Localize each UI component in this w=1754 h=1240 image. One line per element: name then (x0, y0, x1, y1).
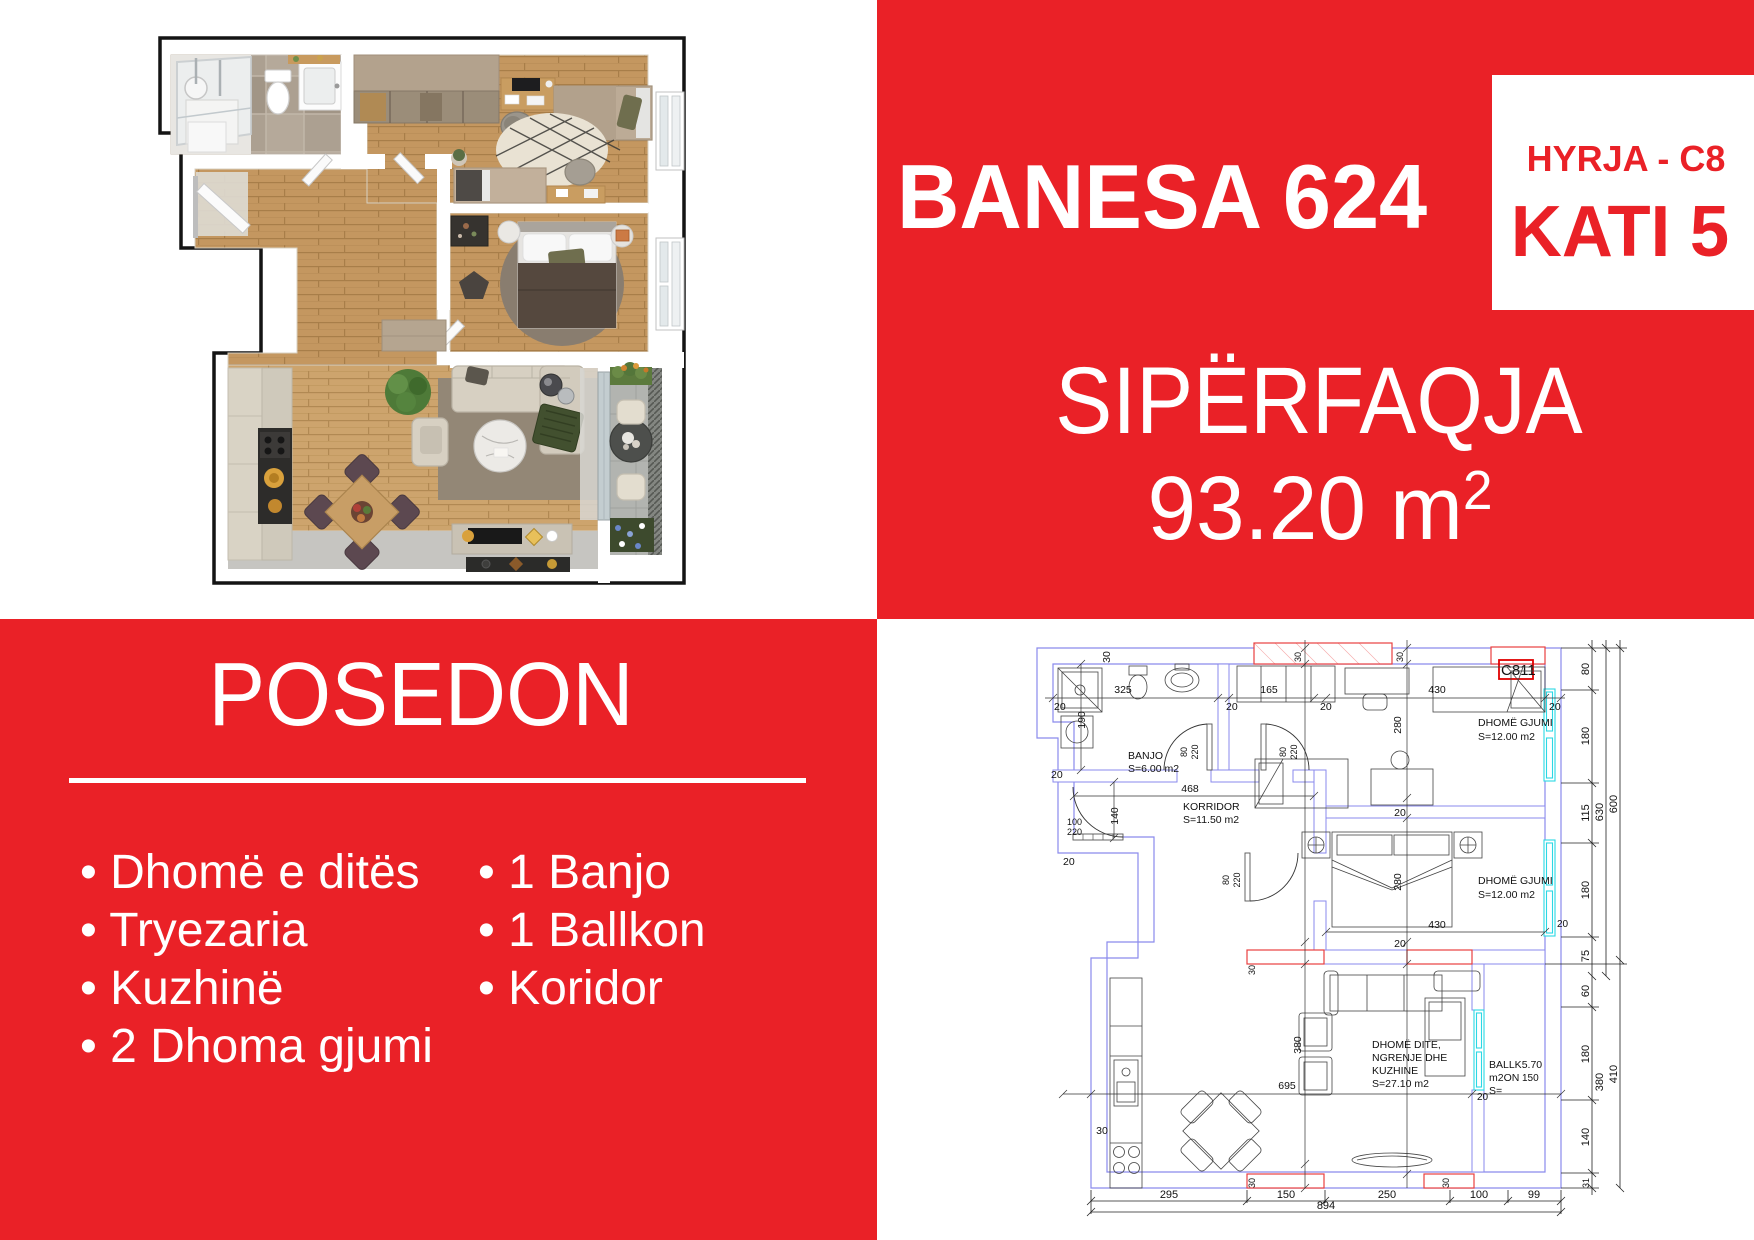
svg-text:600: 600 (1608, 795, 1620, 813)
svg-text:S=11.50 m2: S=11.50 m2 (1183, 814, 1239, 826)
svg-text:410: 410 (1608, 1065, 1620, 1083)
svg-text:100: 100 (1067, 817, 1082, 827)
svg-text:31: 31 (1581, 1178, 1591, 1188)
svg-text:180: 180 (1580, 1045, 1592, 1063)
svg-text:220: 220 (1067, 827, 1082, 837)
svg-text:220: 220 (1190, 744, 1200, 759)
svg-text:BALLK5.70: BALLK5.70 (1489, 1059, 1542, 1071)
svg-text:80: 80 (1278, 747, 1288, 757)
svg-text:C811: C811 (1501, 662, 1536, 679)
svg-text:140: 140 (1580, 1128, 1592, 1146)
svg-text:30: 30 (1247, 1178, 1257, 1188)
svg-text:430: 430 (1428, 919, 1446, 931)
svg-text:20: 20 (1051, 769, 1063, 781)
svg-text:80: 80 (1221, 875, 1231, 885)
svg-text:S=27.10 m2: S=27.10 m2 (1372, 1078, 1429, 1090)
svg-text:220: 220 (1289, 744, 1299, 759)
svg-text:KORRIDOR: KORRIDOR (1183, 801, 1240, 813)
svg-text:30: 30 (1096, 1125, 1108, 1137)
svg-text:30: 30 (1293, 652, 1303, 662)
svg-text:20: 20 (1394, 938, 1406, 950)
svg-text:20: 20 (1226, 701, 1238, 713)
svg-text:280: 280 (1392, 716, 1404, 734)
svg-text:20: 20 (1477, 1092, 1489, 1103)
svg-text:220: 220 (1232, 872, 1242, 887)
svg-text:99: 99 (1528, 1189, 1540, 1201)
svg-text:m2ON: m2ON (1489, 1072, 1519, 1084)
svg-text:DHOMË DITE,: DHOMË DITE, (1372, 1039, 1441, 1051)
svg-text:150: 150 (1522, 1073, 1539, 1084)
svg-text:DHOMË GJUMI: DHOMË GJUMI (1478, 875, 1553, 887)
svg-text:S=: S= (1489, 1085, 1502, 1097)
svg-text:180: 180 (1580, 727, 1592, 745)
svg-text:30: 30 (1101, 651, 1113, 663)
svg-text:20: 20 (1063, 856, 1075, 868)
svg-text:380: 380 (1292, 1036, 1304, 1054)
svg-text:190: 190 (1076, 711, 1088, 729)
svg-text:20: 20 (1054, 701, 1066, 713)
svg-text:250: 250 (1378, 1189, 1396, 1201)
svg-text:BANJO: BANJO (1128, 750, 1163, 762)
svg-text:20: 20 (1394, 807, 1406, 819)
svg-text:894: 894 (1317, 1200, 1335, 1212)
svg-text:295: 295 (1160, 1189, 1178, 1201)
svg-text:280: 280 (1392, 873, 1404, 891)
svg-text:20: 20 (1320, 701, 1332, 713)
svg-text:DHOMË GJUMI: DHOMË GJUMI (1478, 717, 1553, 729)
svg-text:S=12.00 m2: S=12.00 m2 (1478, 889, 1535, 901)
svg-text:180: 180 (1580, 881, 1592, 899)
svg-text:20: 20 (1549, 701, 1561, 713)
svg-text:75: 75 (1580, 950, 1592, 962)
svg-text:20: 20 (1557, 919, 1569, 930)
svg-text:630: 630 (1594, 803, 1606, 821)
svg-text:150: 150 (1277, 1189, 1295, 1201)
svg-text:140: 140 (1109, 807, 1121, 825)
svg-text:380: 380 (1594, 1073, 1606, 1091)
svg-text:KUZHINE: KUZHINE (1372, 1065, 1418, 1077)
svg-text:30: 30 (1441, 1178, 1451, 1188)
svg-text:468: 468 (1181, 783, 1199, 795)
svg-text:165: 165 (1260, 684, 1278, 696)
svg-text:30: 30 (1395, 652, 1405, 662)
svg-text:30: 30 (1247, 965, 1257, 975)
svg-text:80: 80 (1179, 747, 1189, 757)
svg-text:695: 695 (1278, 1080, 1296, 1092)
svg-text:S=6.00 m2: S=6.00 m2 (1128, 763, 1179, 775)
svg-text:80: 80 (1580, 663, 1592, 675)
svg-text:325: 325 (1114, 684, 1132, 696)
svg-text:NGRENJE DHE: NGRENJE DHE (1372, 1052, 1447, 1064)
svg-text:100: 100 (1470, 1189, 1488, 1201)
svg-text:60: 60 (1580, 985, 1592, 997)
svg-text:115: 115 (1580, 804, 1592, 822)
svg-text:S=12.00 m2: S=12.00 m2 (1478, 731, 1535, 743)
svg-text:430: 430 (1428, 684, 1446, 696)
